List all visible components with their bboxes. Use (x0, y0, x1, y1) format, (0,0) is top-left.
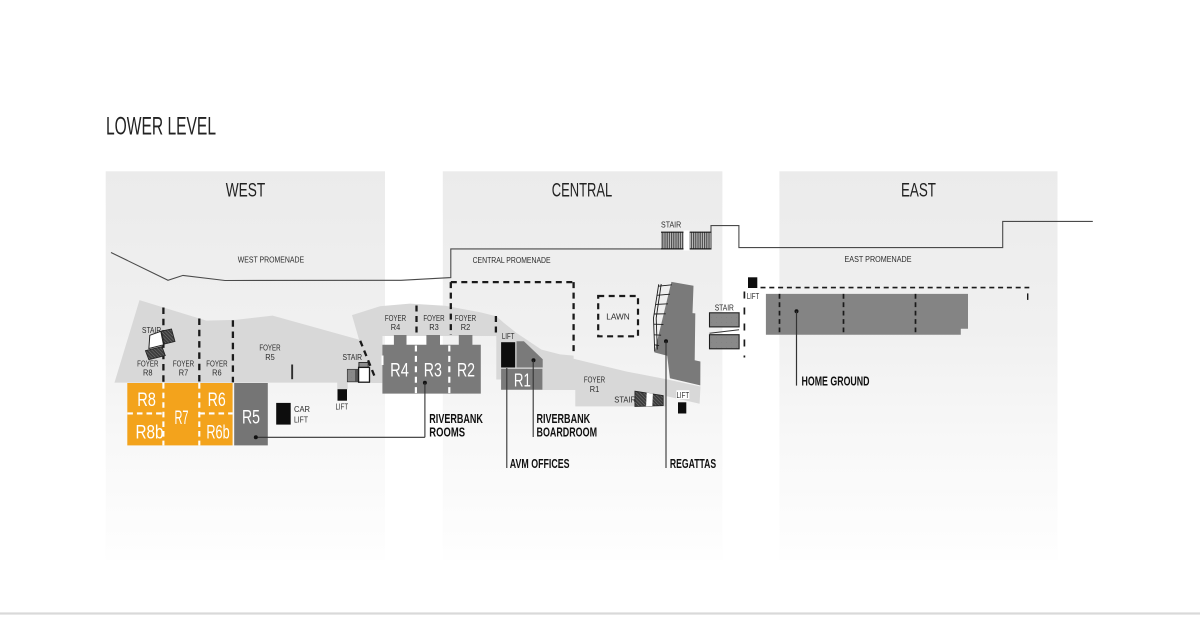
svg-text:AVM OFFICES: AVM OFFICES (510, 457, 570, 471)
svg-text:STAIR: STAIR (715, 302, 734, 312)
svg-text:R2: R2 (457, 361, 475, 382)
svg-text:RIVERBANK: RIVERBANK (429, 412, 483, 426)
svg-text:R6b: R6b (206, 422, 229, 443)
svg-text:R8: R8 (143, 368, 153, 378)
svg-text:LIFT: LIFT (677, 390, 690, 400)
svg-text:STAIR: STAIR (614, 395, 636, 405)
svg-text:R8: R8 (137, 390, 156, 411)
svg-text:R6: R6 (212, 368, 222, 378)
svg-text:STAIR: STAIR (661, 220, 681, 230)
svg-text:CAR: CAR (294, 404, 310, 414)
svg-text:HOME GROUND: HOME GROUND (802, 375, 870, 389)
svg-text:R2: R2 (461, 322, 471, 332)
svg-text:R4: R4 (391, 322, 401, 332)
svg-text:R7: R7 (179, 368, 189, 378)
svg-text:R4: R4 (390, 361, 409, 382)
svg-text:WEST: WEST (226, 180, 266, 202)
svg-text:STAIR: STAIR (343, 352, 363, 362)
svg-text:BOARDROOM: BOARDROOM (537, 426, 598, 440)
svg-text:R8b: R8b (136, 422, 164, 443)
svg-text:LIFT: LIFT (502, 331, 515, 341)
svg-text:R1: R1 (514, 370, 531, 390)
svg-text:REGATTAS: REGATTAS (670, 457, 716, 471)
svg-text:R6: R6 (208, 390, 226, 411)
svg-text:EAST PROMENADE: EAST PROMENADE (845, 254, 912, 264)
svg-text:EAST: EAST (901, 180, 936, 202)
svg-text:R3: R3 (424, 361, 442, 382)
svg-text:LAWN: LAWN (606, 312, 630, 322)
svg-text:LIFT: LIFT (336, 401, 349, 411)
svg-text:R5: R5 (265, 352, 275, 362)
svg-text:R5: R5 (242, 407, 260, 428)
svg-text:R1: R1 (590, 384, 600, 394)
svg-text:LOWER LEVEL: LOWER LEVEL (106, 113, 216, 141)
svg-text:FOYER: FOYER (259, 343, 280, 353)
svg-text:R7: R7 (175, 408, 189, 429)
svg-text:WEST PROMENADE: WEST PROMENADE (238, 255, 305, 265)
svg-text:LIFT: LIFT (747, 291, 760, 301)
svg-text:ROOMS: ROOMS (429, 426, 465, 440)
svg-text:CENTRAL PROMENADE: CENTRAL PROMENADE (473, 255, 551, 265)
svg-text:LIFT: LIFT (294, 414, 309, 424)
svg-text:CENTRAL: CENTRAL (552, 180, 613, 202)
svg-text:R3: R3 (429, 322, 439, 332)
svg-text:RIVERBANK: RIVERBANK (537, 412, 591, 426)
